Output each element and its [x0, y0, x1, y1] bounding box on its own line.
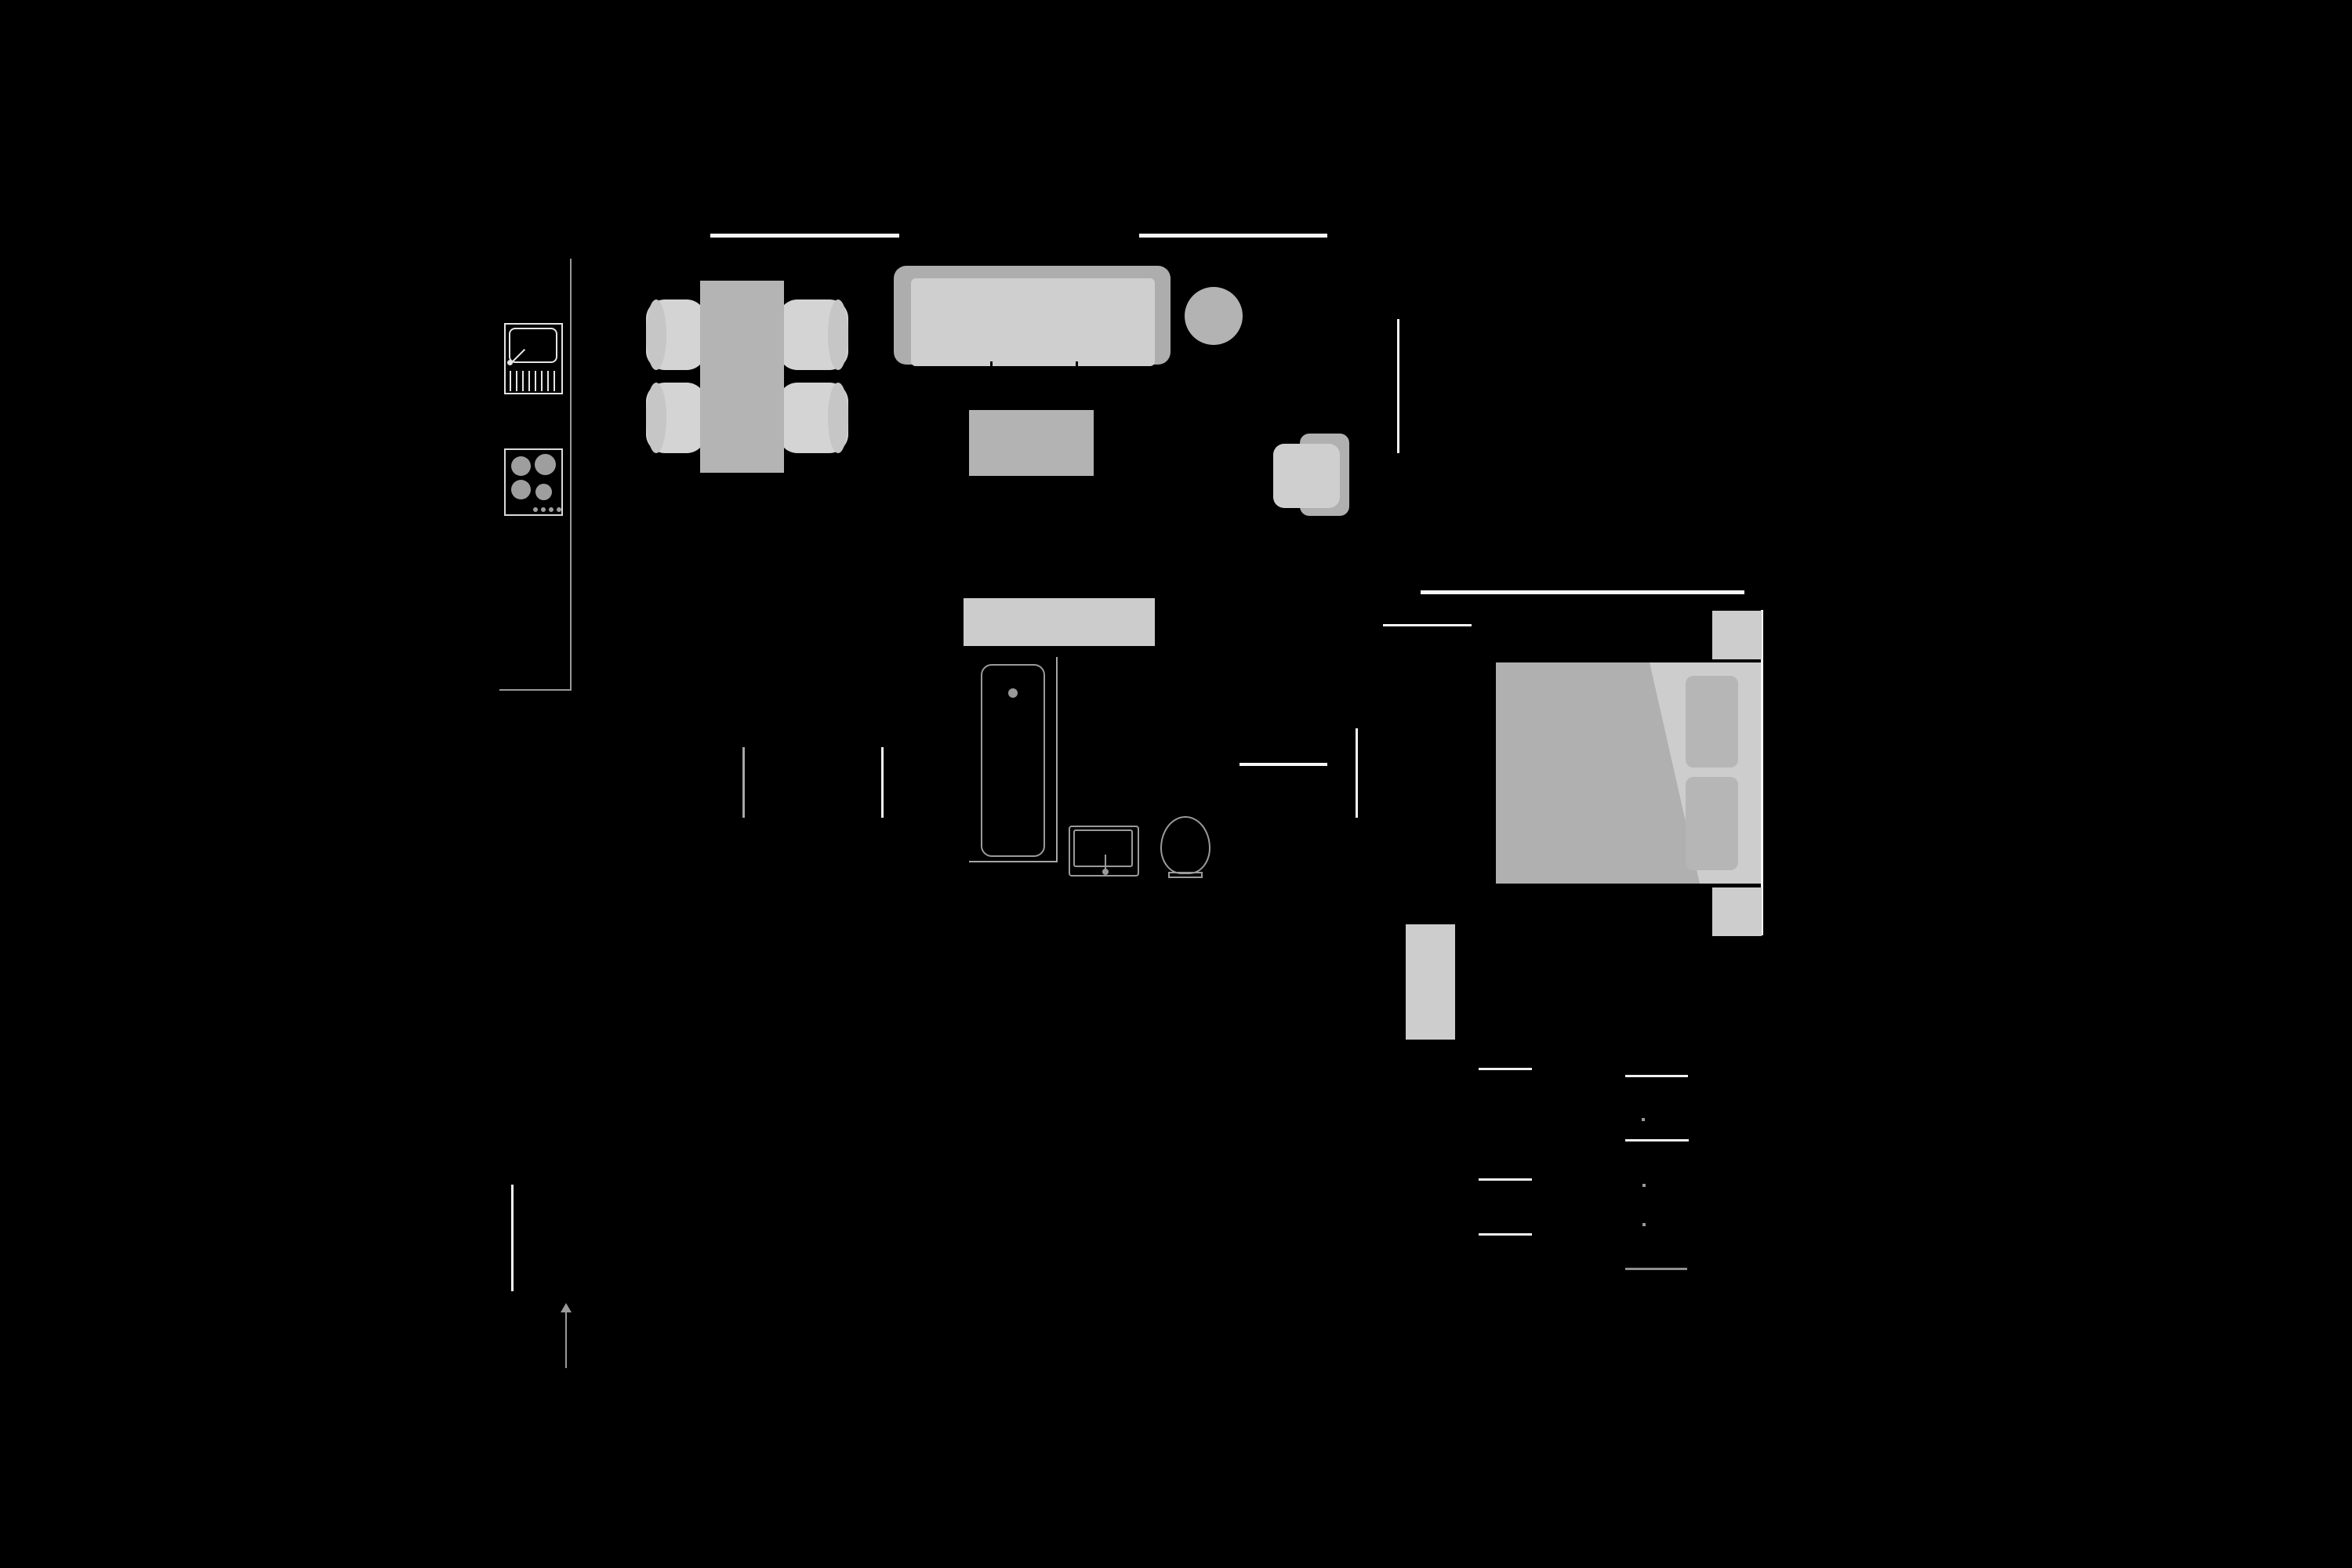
wall-bedroom-top: [1421, 590, 1744, 594]
dining-chair-bottom-left: [646, 383, 706, 453]
toilet-bowl: [1160, 816, 1210, 874]
dining-chair-top-right: [779, 299, 848, 370]
dining-chair-bottom-right: [779, 383, 848, 453]
cooktop-knob: [533, 507, 538, 512]
closet-shelf-mark: [1642, 1118, 1645, 1121]
closet-shelf-right-1: [1625, 1075, 1688, 1077]
closet-shelf-right-2: [1625, 1139, 1689, 1142]
bathroom-faucet-dot: [1102, 869, 1109, 875]
burner-bottom-left: [511, 480, 531, 499]
bed-pillow-top: [1686, 676, 1738, 768]
sofa-seat: [911, 278, 1155, 366]
door-jamb-right: [881, 747, 884, 818]
kitchen-counter-line-vertical: [570, 259, 572, 690]
bathroom-sink: [1069, 826, 1139, 877]
side-table: [1185, 287, 1243, 345]
wall-hallway-vertical: [1356, 728, 1358, 818]
wall-top-left: [710, 234, 899, 238]
bathroom-wall-horizontal: [969, 861, 1058, 862]
closet-shelf-right-3: [1625, 1268, 1687, 1270]
sofa-cushion-divider: [1076, 361, 1078, 366]
bathtub-drain-icon: [1008, 688, 1018, 698]
kitchen-sink: [504, 323, 563, 394]
burner-top-left: [511, 456, 531, 476]
wall-living-right: [1397, 319, 1399, 453]
chair-end-cap: [828, 383, 848, 453]
closet-shelf-mark: [1642, 1223, 1646, 1226]
chair-end-cap: [828, 299, 848, 370]
door-jamb-left: [742, 747, 745, 818]
nightstand-top: [1712, 611, 1762, 659]
cooktop-knob: [549, 507, 554, 512]
cooktop-knob: [557, 507, 561, 512]
wall-top-right: [1139, 234, 1327, 238]
armchair-seat: [1273, 444, 1340, 508]
chair-end-cap: [646, 383, 666, 453]
floor-plan-canvas: { "canvas": { "width_px": 3000, "height_…: [0, 0, 2352, 1568]
closet-shelf-left-3: [1479, 1233, 1532, 1236]
burner-bottom-right: [535, 484, 552, 500]
tv-console: [964, 598, 1155, 646]
chair-end-cap: [646, 299, 666, 370]
wall-hallway-horizontal: [1240, 763, 1327, 766]
bathtub: [981, 664, 1045, 857]
faucet-dot: [507, 360, 513, 365]
bed-base: [1496, 662, 1761, 884]
kitchen-counter-line-horizontal: [499, 689, 572, 691]
wall-entry: [511, 1185, 514, 1291]
dresser: [1406, 924, 1455, 1040]
burner-top-right: [535, 454, 556, 475]
dining-table: [700, 281, 784, 473]
kitchen-cooktop: [504, 448, 563, 516]
nightstand-bottom: [1712, 887, 1762, 936]
closet-shelf-left-2: [1479, 1178, 1532, 1181]
coffee-table: [969, 410, 1094, 476]
closet-shelf-mark: [1642, 1184, 1646, 1187]
bathroom-wall-vertical: [1056, 657, 1058, 862]
sink-drainboard-icon: [510, 371, 558, 391]
closet-shelf-left-1: [1479, 1068, 1532, 1070]
dining-chair-top-left: [646, 299, 706, 370]
wall-bedroom-stub: [1383, 624, 1472, 626]
cooktop-knob: [541, 507, 546, 512]
bed-pillow-bottom: [1686, 777, 1738, 870]
north-arrow-line: [565, 1311, 567, 1368]
sofa-cushion-divider: [990, 361, 993, 366]
bathroom-sink-basin: [1073, 829, 1133, 867]
toilet-tank: [1168, 872, 1203, 878]
